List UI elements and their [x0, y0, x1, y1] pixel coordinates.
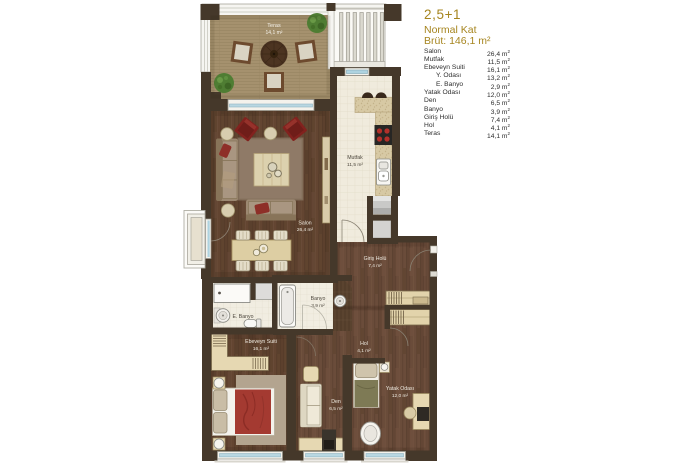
- svg-text:3,9 m²: 3,9 m²: [311, 303, 325, 309]
- svg-text:Banyo: Banyo: [311, 296, 326, 302]
- svg-text:4,1 m²: 4,1 m²: [357, 348, 371, 354]
- svg-text:Salon: Salon: [298, 221, 311, 227]
- svg-text:Giriş Holü: Giriş Holü: [364, 256, 387, 262]
- svg-text:Mutfak: Mutfak: [347, 155, 363, 161]
- svg-text:7,4 m²: 7,4 m²: [368, 263, 382, 269]
- svg-text:12,0 m²: 12,0 m²: [392, 393, 409, 399]
- svg-text:11,5 m²: 11,5 m²: [347, 162, 363, 168]
- svg-text:16,1 m²: 16,1 m²: [253, 346, 270, 352]
- svg-text:Teras: Teras: [267, 23, 281, 29]
- svg-text:Yatak Odası: Yatak Odası: [386, 386, 414, 392]
- svg-text:14,1 m²: 14,1 m²: [266, 30, 283, 36]
- svg-text:E. Banyo: E. Banyo: [232, 314, 253, 320]
- svg-text:Hol: Hol: [360, 341, 368, 347]
- svg-text:6,5 m²: 6,5 m²: [329, 406, 343, 412]
- svg-text:Ebeveyn Suiti: Ebeveyn Suiti: [245, 339, 277, 345]
- svg-text:26,4 m²: 26,4 m²: [297, 227, 314, 233]
- svg-text:Den: Den: [331, 399, 341, 405]
